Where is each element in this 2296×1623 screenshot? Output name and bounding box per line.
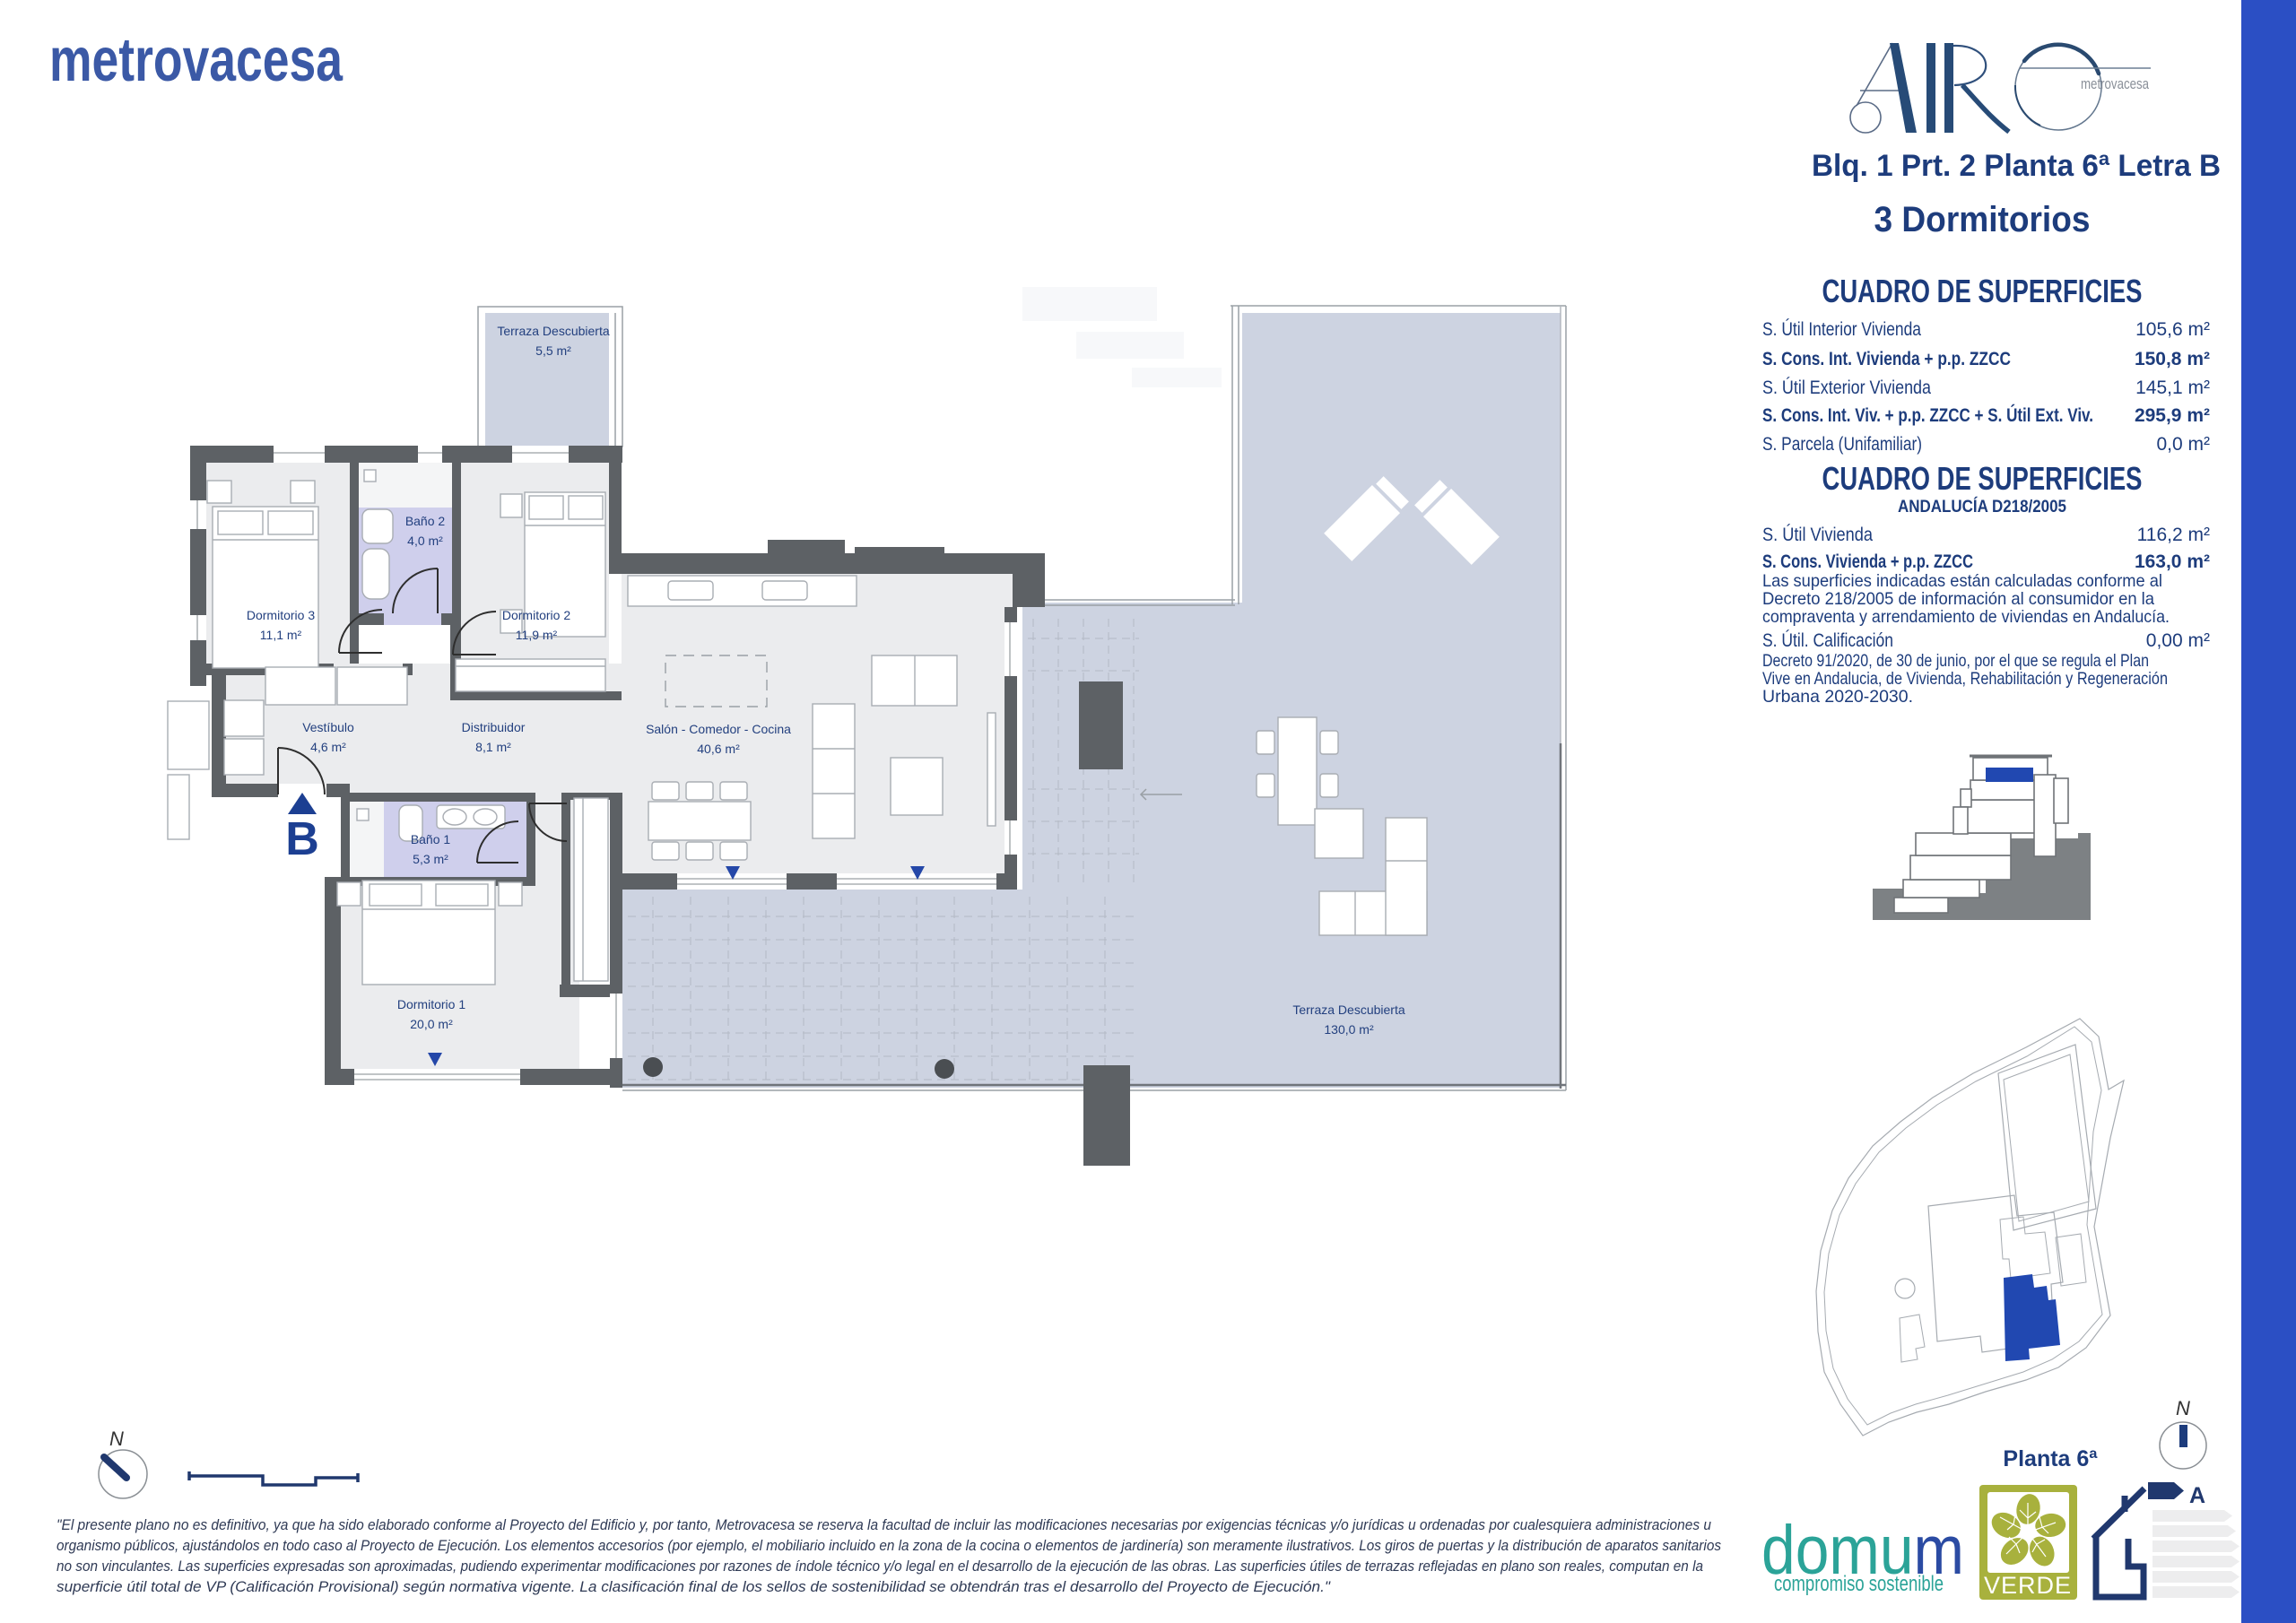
- svg-text:8,1 m²: 8,1 m²: [475, 740, 511, 754]
- svg-text:"El presente plano no es defin: "El presente plano no es definitivo, ya …: [57, 1517, 1711, 1533]
- svg-text:4,6 m²: 4,6 m²: [310, 740, 346, 754]
- svg-text:105,6 m²: 105,6 m²: [2135, 319, 2210, 340]
- svg-text:S. Parcela (Unifamiliar): S. Parcela (Unifamiliar): [1762, 434, 1922, 455]
- svg-text:Las superficies indicadas está: Las superficies indicadas están calculad…: [1762, 571, 2162, 591]
- svg-text:B: B: [285, 813, 319, 865]
- svg-text:163,0 m²: 163,0 m²: [2135, 551, 2210, 572]
- svg-text:116,2 m²: 116,2 m²: [2137, 525, 2210, 545]
- svg-text:S. Cons. Int. Vivienda + p.p.: S. Cons. Int. Vivienda + p.p. ZZCC: [1762, 349, 2011, 369]
- svg-text:Urbana 2020-2030.: Urbana 2020-2030.: [1762, 687, 1913, 707]
- svg-text:CUADRO DE SUPERFICIES: CUADRO DE SUPERFICIES: [1822, 460, 2143, 497]
- svg-text:Decreto 218/2005 de informació: Decreto 218/2005 de información al consu…: [1762, 589, 2154, 609]
- svg-text:Dormitorio 1: Dormitorio 1: [397, 997, 465, 1011]
- svg-text:5,3 m²: 5,3 m²: [413, 852, 448, 866]
- svg-text:Terraza Descubierta: Terraza Descubierta: [1292, 1002, 1405, 1017]
- svg-text:Salón - Comedor - Cocina: Salón - Comedor - Cocina: [646, 722, 791, 736]
- svg-text:S. Útil Vivienda: S. Útil Vivienda: [1762, 525, 1873, 545]
- svg-text:Decreto 91/2020, de 30 de juni: Decreto 91/2020, de 30 de junio, por el …: [1762, 651, 2149, 671]
- svg-text:Distribuidor: Distribuidor: [462, 720, 526, 734]
- svg-text:compraventa y arrendamiento de: compraventa y arrendamiento de viviendas…: [1762, 607, 2170, 627]
- svg-text:Planta 6ª: Planta 6ª: [2003, 1446, 2098, 1471]
- svg-text:S. Útil Exterior Vivienda: S. Útil Exterior Vivienda: [1762, 378, 1931, 398]
- svg-text:ANDALUCÍA D218/2005: ANDALUCÍA D218/2005: [1898, 497, 2066, 516]
- svg-text:A: A: [2189, 1483, 2205, 1508]
- svg-text:CUADRO DE SUPERFICIES: CUADRO DE SUPERFICIES: [1822, 273, 2143, 309]
- svg-text:metrovacesa: metrovacesa: [49, 25, 343, 94]
- svg-text:Blq. 1 Prt. 2 Planta 6ª Letra: Blq. 1 Prt. 2 Planta 6ª Letra B: [1812, 149, 2221, 183]
- svg-text:S. Cons. Vivienda + p.p. ZZCC: S. Cons. Vivienda + p.p. ZZCC: [1762, 551, 1973, 572]
- svg-text:0,0 m²: 0,0 m²: [2156, 434, 2210, 455]
- svg-text:Vive en Andalucia, de Vivienda: Vive en Andalucia, de Vivienda, Rehabili…: [1762, 669, 2168, 689]
- svg-text:VERDE: VERDE: [1984, 1572, 2072, 1599]
- svg-text:145,1 m²: 145,1 m²: [2135, 378, 2210, 398]
- svg-text:150,8 m²: 150,8 m²: [2135, 349, 2210, 369]
- svg-text:N: N: [2176, 1397, 2190, 1419]
- svg-text:S. Útil. Calificación: S. Útil. Calificación: [1762, 630, 1893, 651]
- svg-text:Baño 1: Baño 1: [411, 832, 451, 846]
- svg-text:Baño 2: Baño 2: [405, 514, 446, 528]
- svg-text:11,9 m²: 11,9 m²: [516, 628, 558, 642]
- svg-text:0,00 m²: 0,00 m²: [2146, 630, 2210, 651]
- svg-text:40,6 m²: 40,6 m²: [697, 742, 740, 756]
- svg-text:4,0 m²: 4,0 m²: [407, 534, 443, 548]
- svg-text:3 Dormitorios: 3 Dormitorios: [1874, 200, 2091, 239]
- svg-text:130,0 m²: 130,0 m²: [1324, 1022, 1374, 1037]
- svg-text:metrovacesa: metrovacesa: [2081, 75, 2149, 92]
- svg-text:compromiso sostenible: compromiso sostenible: [1774, 1572, 1944, 1596]
- svg-text:S. Cons. Int. Viv. + p.p. ZZCC: S. Cons. Int. Viv. + p.p. ZZCC + S. Útil…: [1762, 404, 2093, 426]
- svg-text:Dormitorio 2: Dormitorio 2: [502, 608, 570, 622]
- svg-text:Vestíbulo: Vestíbulo: [302, 720, 354, 734]
- svg-text:organismo públicos, ajustándol: organismo públicos, ajustándolos en todo…: [57, 1538, 1721, 1554]
- svg-text:20,0 m²: 20,0 m²: [410, 1017, 453, 1031]
- svg-text:Terraza Descubierta: Terraza Descubierta: [497, 324, 609, 338]
- svg-text:5,5 m²: 5,5 m²: [535, 343, 571, 358]
- svg-text:S. Útil Interior Vivienda: S. Útil Interior Vivienda: [1762, 319, 1921, 340]
- svg-text:11,1 m²: 11,1 m²: [260, 628, 302, 642]
- svg-text:295,9 m²: 295,9 m²: [2135, 405, 2210, 426]
- svg-text:superficie útil total de VP (C: superficie útil total de VP (Calificació…: [57, 1579, 1331, 1595]
- svg-text:no son vinculantes. Las superf: no son vinculantes. Las superficies expr…: [57, 1558, 1703, 1575]
- svg-text:Dormitorio 3: Dormitorio 3: [247, 608, 315, 622]
- svg-text:N: N: [109, 1428, 124, 1450]
